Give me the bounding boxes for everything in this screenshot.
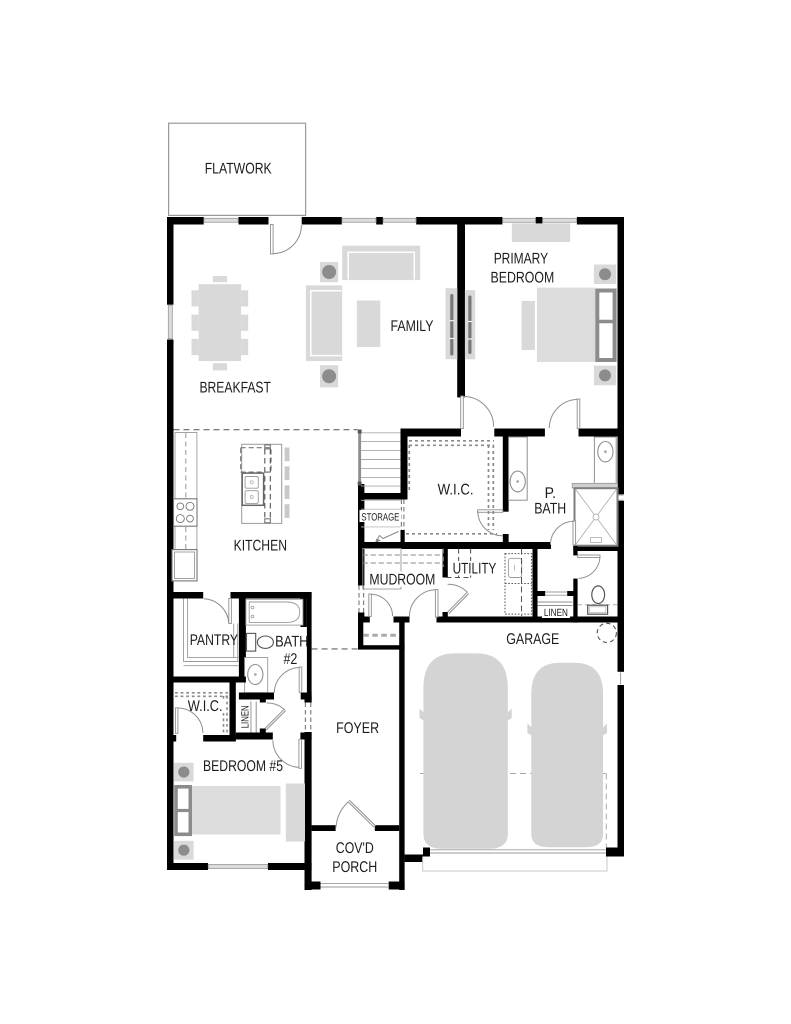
svg-text:#2: #2 xyxy=(283,651,297,668)
svg-text:MUDROOM: MUDROOM xyxy=(369,571,435,588)
svg-text:STORAGE: STORAGE xyxy=(361,511,399,523)
svg-text:BEDROOM #5: BEDROOM #5 xyxy=(203,758,283,775)
svg-text:PANTRY: PANTRY xyxy=(190,632,238,649)
svg-text:PRIMARY: PRIMARY xyxy=(494,251,548,268)
svg-text:W.I.C.: W.I.C. xyxy=(438,481,474,498)
svg-text:LINEN: LINEN xyxy=(544,607,568,619)
svg-text:GARAGE: GARAGE xyxy=(506,631,559,648)
svg-text:W.I.C.: W.I.C. xyxy=(188,698,223,715)
svg-text:UTILITY: UTILITY xyxy=(453,561,497,578)
svg-text:LINEN: LINEN xyxy=(239,705,251,728)
svg-text:FLATWORK: FLATWORK xyxy=(205,160,273,177)
svg-text:BREAKFAST: BREAKFAST xyxy=(199,380,271,397)
svg-text:FOYER: FOYER xyxy=(336,720,379,737)
svg-text:FAMILY: FAMILY xyxy=(391,318,434,335)
svg-text:BATH: BATH xyxy=(275,633,308,650)
svg-text:PORCH: PORCH xyxy=(332,859,377,876)
svg-text:COV'D: COV'D xyxy=(336,840,374,857)
svg-text:BATH: BATH xyxy=(534,501,566,518)
svg-text:BEDROOM: BEDROOM xyxy=(491,269,555,286)
svg-text:KITCHEN: KITCHEN xyxy=(234,537,287,554)
svg-text:P.: P. xyxy=(545,485,556,502)
